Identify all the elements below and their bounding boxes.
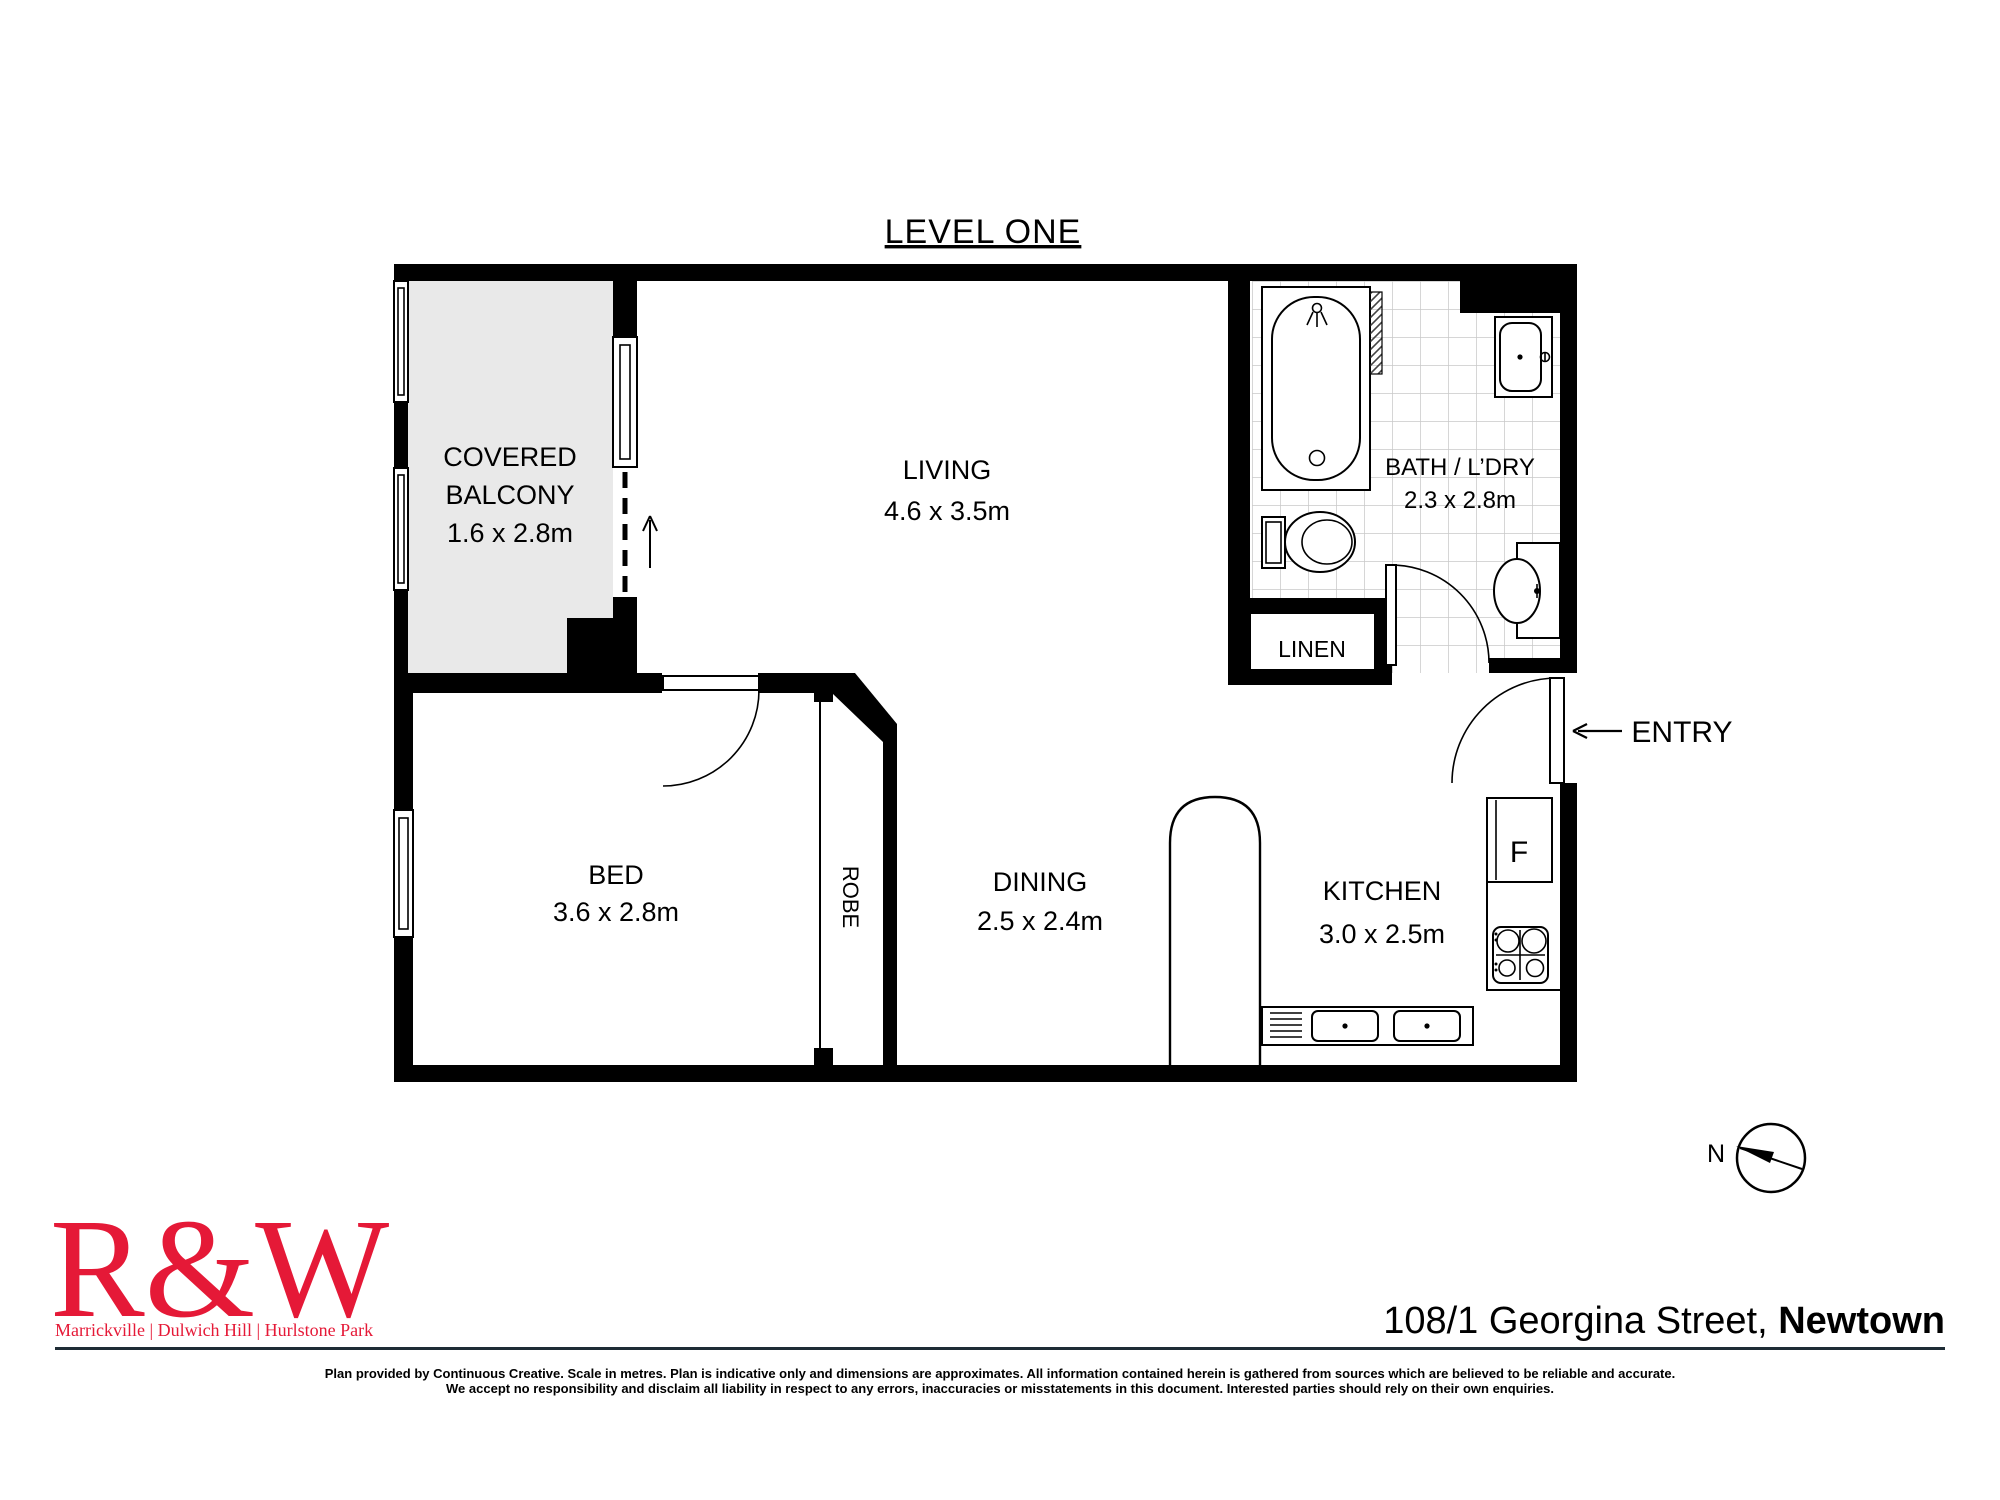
balcony-floor: [408, 281, 613, 673]
entry-door: [1452, 678, 1564, 783]
page-title: LEVEL ONE: [885, 213, 1082, 251]
floor-plan: LEVEL ONE: [0, 0, 2000, 1500]
bed-window: [394, 810, 413, 937]
bath-dims: 2.3 x 2.8m: [1404, 487, 1516, 514]
toilet: [1262, 512, 1355, 572]
entry-label: ENTRY: [1631, 716, 1732, 749]
footer: R&W Marrickville | Dulwich Hill | Hurlst…: [50, 1189, 1945, 1396]
cooktop: [1493, 927, 1548, 983]
living-label: LIVING: [903, 455, 992, 485]
living-dims: 4.6 x 3.5m: [884, 496, 1010, 526]
floorplan-page: LEVEL ONE: [0, 0, 2000, 1500]
footer-divider: [55, 1347, 1945, 1350]
entry-arrow: [1573, 724, 1622, 738]
bathtub: [1262, 287, 1370, 490]
property-address: 108/1 Georgina Street, Newtown: [1383, 1300, 1945, 1342]
compass-north-label: N: [1707, 1140, 1725, 1168]
bed-door: [663, 676, 759, 786]
balcony-label-line1: COVERED: [443, 442, 577, 472]
disclaimer-line1: Plan provided by Continuous Creative. Sc…: [325, 1366, 1675, 1381]
dining-dims: 2.5 x 2.4m: [977, 906, 1103, 936]
kitchen-label: KITCHEN: [1323, 876, 1442, 906]
north-compass-icon: N: [1707, 1124, 1805, 1192]
address-suburb: Newtown: [1778, 1300, 1945, 1342]
dining-label: DINING: [993, 867, 1088, 897]
kitchen-dims: 3.0 x 2.5m: [1319, 919, 1445, 949]
balcony-label-line2: BALCONY: [445, 480, 574, 510]
balcony-dims: 1.6 x 2.8m: [447, 518, 573, 548]
laundry-tub: [1495, 317, 1552, 397]
disclaimer-line2: We accept no responsibility and disclaim…: [446, 1381, 1554, 1396]
fridge-label: F: [1510, 836, 1528, 869]
entry-direction-arrow: [643, 516, 657, 568]
linen-label: LINEN: [1278, 636, 1346, 662]
bed-dims: 3.6 x 2.8m: [553, 897, 679, 927]
address-street: 108/1 Georgina Street,: [1383, 1300, 1778, 1342]
towel-rail-hatch: [1370, 292, 1382, 374]
bed-label: BED: [588, 860, 644, 890]
balcony-sliding-window: [613, 337, 637, 467]
bath-label: BATH / L’DRY: [1385, 454, 1535, 481]
robe-label: ROBE: [838, 866, 863, 928]
kitchen-sink-counter: [1262, 1007, 1473, 1045]
bed-robe-walls: [758, 673, 897, 1065]
agency-offices: Marrickville | Dulwich Hill | Hurlstone …: [55, 1320, 373, 1340]
kitchen-peninsula-bench: [1170, 797, 1260, 1065]
